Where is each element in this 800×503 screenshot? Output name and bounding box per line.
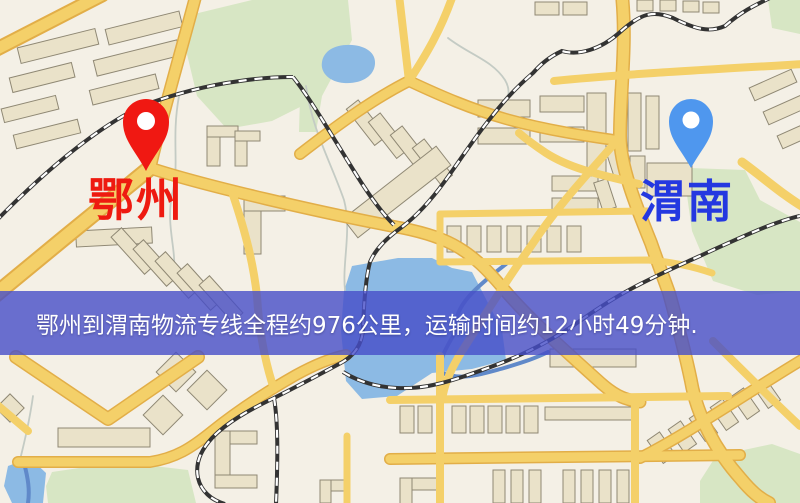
destination-pin: [669, 99, 713, 168]
route-info-text: 鄂州到渭南物流专线全程约976公里，运输时间约12小时49分钟.: [36, 306, 698, 340]
map-screenshot: 鄂州 渭南 鄂州到渭南物流专线全程约976公里，运输时间约12小时49分钟.: [0, 0, 800, 503]
red-map-pin-icon: [123, 99, 169, 171]
map-canvas: [0, 0, 800, 503]
blue-pin-hole: [683, 112, 700, 129]
destination-city-label: 渭南: [640, 179, 734, 224]
route-info-banner: 鄂州到渭南物流专线全程约976公里，运输时间约12小时49分钟.: [0, 291, 800, 355]
red-pin-hole: [137, 112, 155, 130]
origin-pin: [123, 99, 169, 171]
origin-city-label: 鄂州: [88, 177, 184, 223]
blue-map-pin-icon: [669, 99, 713, 168]
